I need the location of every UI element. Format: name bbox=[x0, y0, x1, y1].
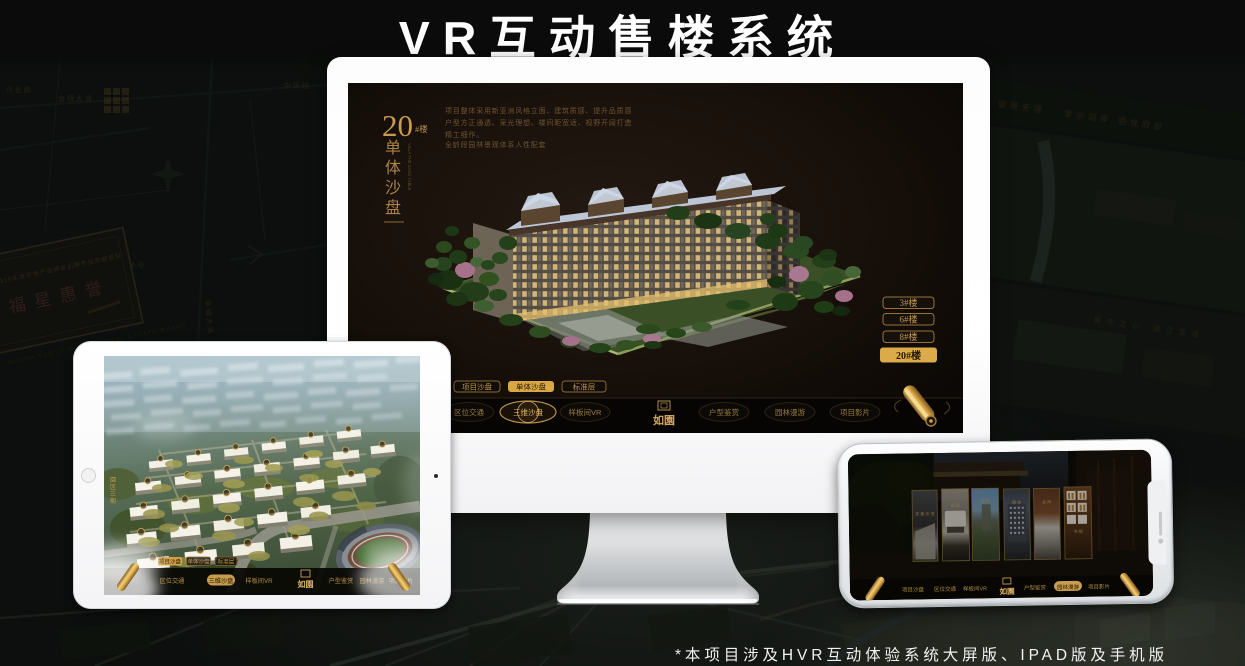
svg-text:园林漫游: 园林漫游 bbox=[775, 407, 805, 417]
svg-text:三维沙盘: 三维沙盘 bbox=[513, 407, 543, 417]
svg-text:单体沙盘: 单体沙盘 bbox=[187, 558, 210, 566]
svg-text:沙: 沙 bbox=[385, 180, 401, 197]
svg-text:兴 业 路: 兴 业 路 bbox=[6, 85, 31, 94]
svg-text:VILLA THE SAND TABLE: VILLA THE SAND TABLE bbox=[407, 143, 412, 191]
svg-text:单: 单 bbox=[385, 139, 401, 157]
svg-text:盘: 盘 bbox=[385, 198, 401, 217]
svg-text:#楼: #楼 bbox=[415, 124, 428, 134]
svg-text:标准层: 标准层 bbox=[218, 558, 235, 566]
svg-text:标准层: 标准层 bbox=[573, 382, 596, 392]
svg-text:全龄段园林景观体系人性配套: 全龄段园林景观体系人性配套 bbox=[445, 140, 546, 149]
svg-text:项目沙盘: 项目沙盘 bbox=[462, 382, 492, 392]
svg-text:户型方正通透、采光理想、楼间距宽适、视野开阔打造: 户型方正通透、采光理想、楼间距宽适、视野开阔打造 bbox=[445, 118, 632, 127]
svg-text:单体沙盘: 单体沙盘 bbox=[516, 382, 546, 392]
svg-text:3#楼: 3#楼 bbox=[899, 297, 917, 308]
svg-text:中 环 线: 中 环 线 bbox=[284, 81, 309, 90]
svg-text:区位交通: 区位交通 bbox=[454, 407, 484, 417]
svg-text:项目沙盘: 项目沙盘 bbox=[159, 558, 182, 566]
svg-text:户型鉴赏: 户型鉴赏 bbox=[329, 577, 354, 585]
svg-text:项目整体采用新亚洲风格立面、建筑质感、提升品质感: 项目整体采用新亚洲风格立面、建筑质感、提升品质感 bbox=[445, 106, 632, 115]
svg-text:金 桥 大 道: 金 桥 大 道 bbox=[58, 94, 92, 103]
svg-text:三维沙盘: 三维沙盘 bbox=[209, 577, 234, 585]
svg-text:户型鉴赏: 户型鉴赏 bbox=[709, 407, 739, 417]
svg-text:20: 20 bbox=[382, 108, 413, 143]
svg-text:三: 三 bbox=[110, 491, 116, 498]
svg-text:样板间VR: 样板间VR bbox=[569, 407, 603, 417]
svg-text:期: 期 bbox=[110, 497, 116, 505]
svg-text:精工细作。: 精工细作。 bbox=[445, 130, 484, 139]
svg-text:8#楼: 8#楼 bbox=[899, 331, 917, 342]
svg-text:如園: 如園 bbox=[999, 586, 1015, 596]
svg-text:样板间VR: 样板间VR bbox=[245, 577, 273, 585]
svg-text:如園: 如園 bbox=[298, 579, 314, 589]
svg-text:项目影片: 项目影片 bbox=[840, 407, 870, 417]
svg-text:体: 体 bbox=[385, 159, 401, 177]
svg-text:6#楼: 6#楼 bbox=[899, 314, 917, 325]
svg-text:20#楼: 20#楼 bbox=[896, 349, 921, 362]
svg-text:区: 区 bbox=[110, 484, 116, 491]
svg-text:如園: 如園 bbox=[653, 413, 675, 427]
svg-text:園: 園 bbox=[110, 477, 116, 484]
svg-text:区位交通: 区位交通 bbox=[160, 577, 185, 585]
